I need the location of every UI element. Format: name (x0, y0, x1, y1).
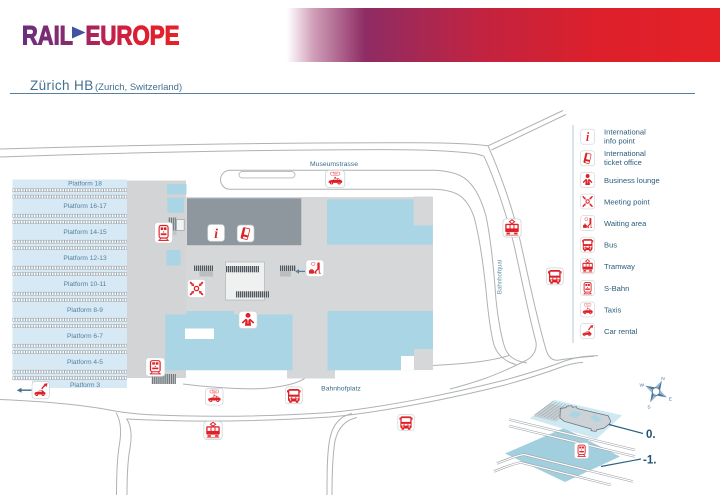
svg-text:Platform 6-7: Platform 6-7 (67, 333, 103, 340)
svg-text:Zürich HB: Zürich HB (30, 78, 94, 93)
svg-text:Bus: Bus (604, 241, 617, 250)
svg-text:Platform 12-13: Platform 12-13 (63, 255, 107, 262)
svg-text:Car rental: Car rental (604, 327, 638, 336)
svg-text:Platform 16-17: Platform 16-17 (63, 203, 107, 210)
svg-text:Platform 14-15: Platform 14-15 (63, 229, 107, 236)
svg-text:International: International (604, 128, 646, 137)
svg-text:Platform 18: Platform 18 (68, 181, 102, 188)
svg-text:Platform 8-9: Platform 8-9 (67, 307, 103, 314)
svg-text:Taxis: Taxis (604, 305, 622, 314)
svg-text:W: W (639, 383, 644, 389)
svg-text:Platform 4-5: Platform 4-5 (67, 359, 103, 366)
svg-text:EUROPE: EUROPE (86, 21, 180, 51)
svg-text:Tramway: Tramway (604, 262, 635, 271)
svg-text:Platform 3: Platform 3 (70, 382, 100, 389)
svg-text:Waiting area: Waiting area (604, 219, 647, 228)
svg-text:S: S (647, 405, 650, 411)
svg-text:0.: 0. (646, 429, 656, 441)
svg-text:info point: info point (604, 137, 636, 146)
svg-text:Meeting point: Meeting point (604, 197, 650, 206)
svg-text:Bahnhofquai: Bahnhofquai (497, 260, 504, 294)
svg-text:International: International (604, 149, 646, 158)
svg-text:N: N (661, 376, 665, 382)
svg-text:Business lounge: Business lounge (604, 176, 660, 185)
svg-text:(Zurich, Switzerland): (Zurich, Switzerland) (95, 82, 182, 93)
svg-text:ticket office: ticket office (604, 158, 642, 167)
svg-text:-1.: -1. (643, 455, 656, 467)
svg-text:Bahnhofplatz: Bahnhofplatz (321, 386, 361, 393)
svg-text:RAIL: RAIL (22, 21, 73, 51)
svg-text:Museumstrasse: Museumstrasse (310, 161, 358, 168)
svg-text:S-Bahn: S-Bahn (604, 284, 629, 293)
svg-text:E: E (669, 397, 672, 403)
svg-text:Platform 10-11: Platform 10-11 (64, 281, 107, 288)
